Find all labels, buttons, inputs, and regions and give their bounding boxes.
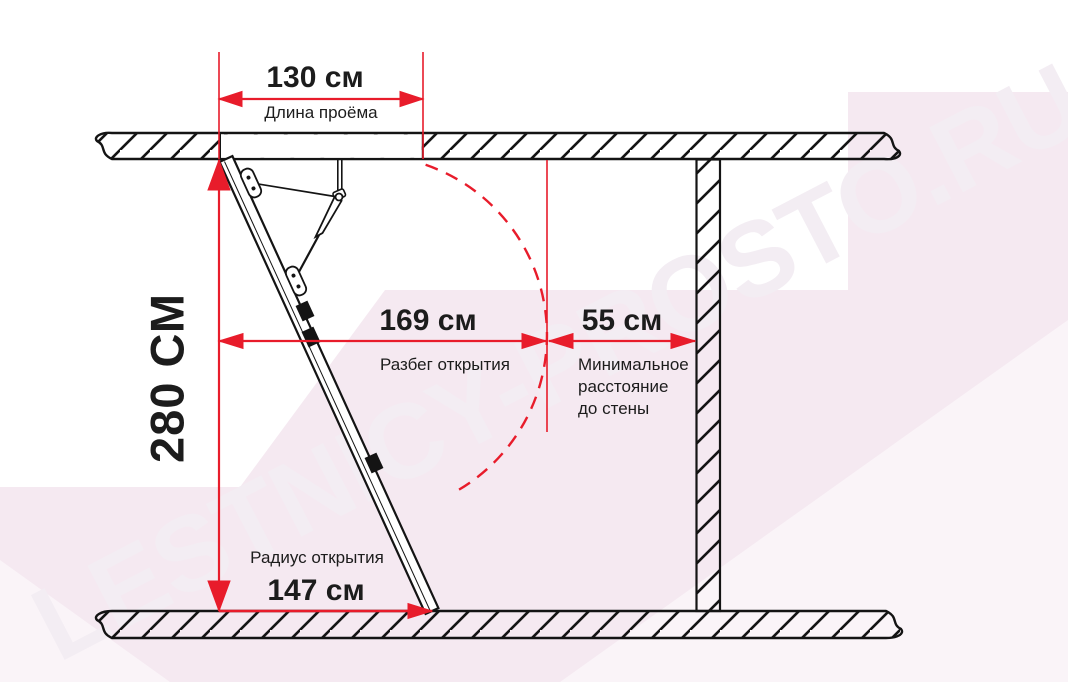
room-height-value: 280 СМ: [142, 293, 191, 463]
dimension-room-height: [208, 160, 230, 611]
ceiling-opening: [221, 134, 422, 157]
attic-ladder-dimension-diagram: LESTNICY-PROSTO.RU: [0, 0, 1068, 682]
opening-radius-label: Радиус открытия: [250, 549, 384, 567]
opening-radius-value: 147 см: [267, 575, 364, 607]
opening-run-value: 169 см: [379, 305, 476, 337]
opening-length-label: Длина проёма: [264, 104, 377, 122]
ceiling-structure: [96, 133, 900, 159]
wall-distance-label: Минимальное расстояние до стены: [578, 354, 689, 420]
wall-distance-label-line: Минимальное: [578, 354, 689, 376]
wall-structure: [697, 160, 721, 612]
opening-length-value: 130 см: [266, 62, 363, 94]
folding-ladder: [220, 156, 439, 614]
wall-distance-value: 55 см: [582, 305, 663, 337]
wall-distance-label-line: расстояние: [578, 376, 689, 398]
wall-distance-label-line: до стены: [578, 398, 689, 420]
floor-structure: [96, 611, 902, 638]
opening-run-label: Разбег открытия: [380, 356, 510, 374]
